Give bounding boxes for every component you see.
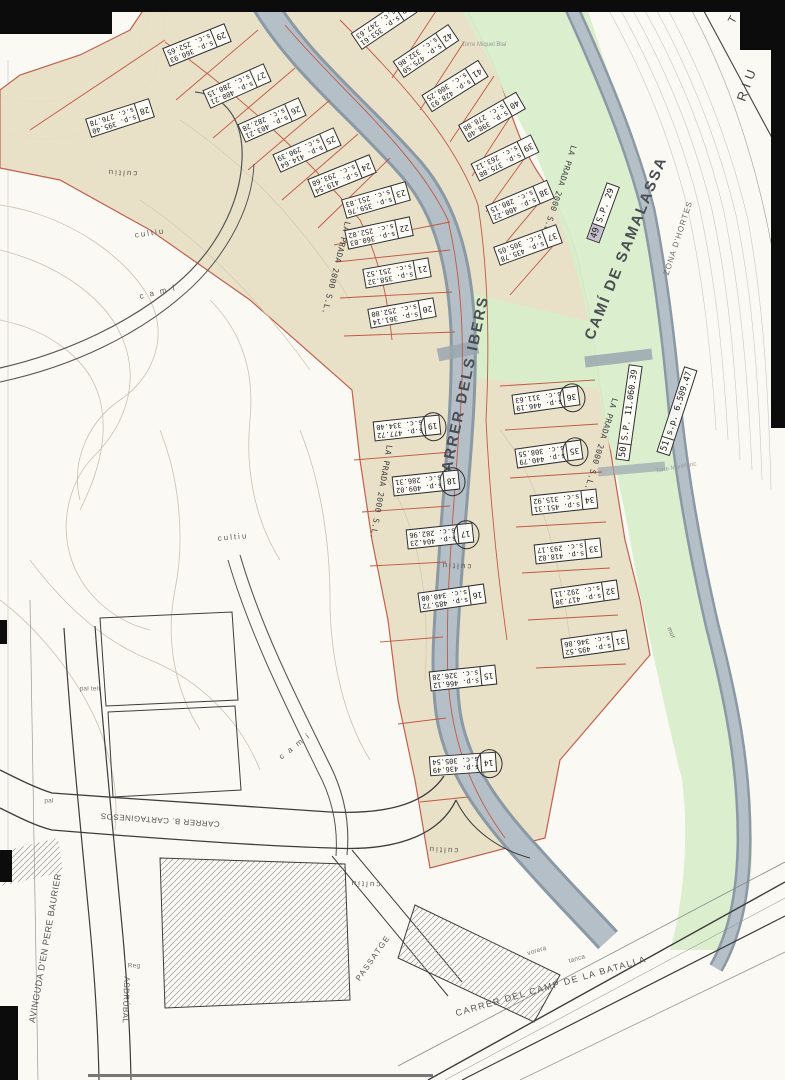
scan-line-bottom bbox=[88, 1074, 433, 1077]
plot-number: 50 bbox=[617, 443, 631, 460]
scanned-map-page: 29s.p. 360.93s.c. 252.65 28s.p. 395.40s.… bbox=[0, 0, 785, 1080]
feature-label-torre-miquel: Torre Miquel Bial bbox=[462, 42, 507, 48]
plot-number: 34 bbox=[581, 490, 597, 509]
feature-label-pal: pal bbox=[44, 798, 53, 805]
landuse-label-cultiu: cultiu bbox=[106, 168, 137, 179]
street-label-asdrubal: ASDRÚBAL bbox=[121, 976, 132, 1023]
scan-edge-top bbox=[0, 0, 772, 12]
plot-number: 31 bbox=[611, 631, 628, 651]
scan-mark-left bbox=[0, 620, 7, 644]
plot-number: 32 bbox=[601, 581, 618, 601]
plot-number: 15 bbox=[480, 666, 496, 685]
scan-mark-left-lower bbox=[0, 850, 12, 882]
scan-edge-right bbox=[771, 0, 785, 428]
scan-edge-bottom-left bbox=[0, 1006, 18, 1080]
plot-label-14: 14s.p. 436.49s.c. 305.54 bbox=[429, 752, 497, 777]
plot-number: 16 bbox=[468, 585, 485, 605]
feature-label-reg: Reg bbox=[128, 963, 141, 970]
scan-edge-top-left bbox=[0, 0, 112, 34]
plot-number: 33 bbox=[585, 539, 601, 558]
feature-label-pal-telf: pal telf bbox=[80, 686, 101, 693]
landuse-label-cultiu: cultiu bbox=[427, 845, 458, 856]
landuse-label-cultiu: cultiu bbox=[440, 561, 471, 572]
landuse-label-cultiu: cultiu bbox=[349, 879, 380, 890]
